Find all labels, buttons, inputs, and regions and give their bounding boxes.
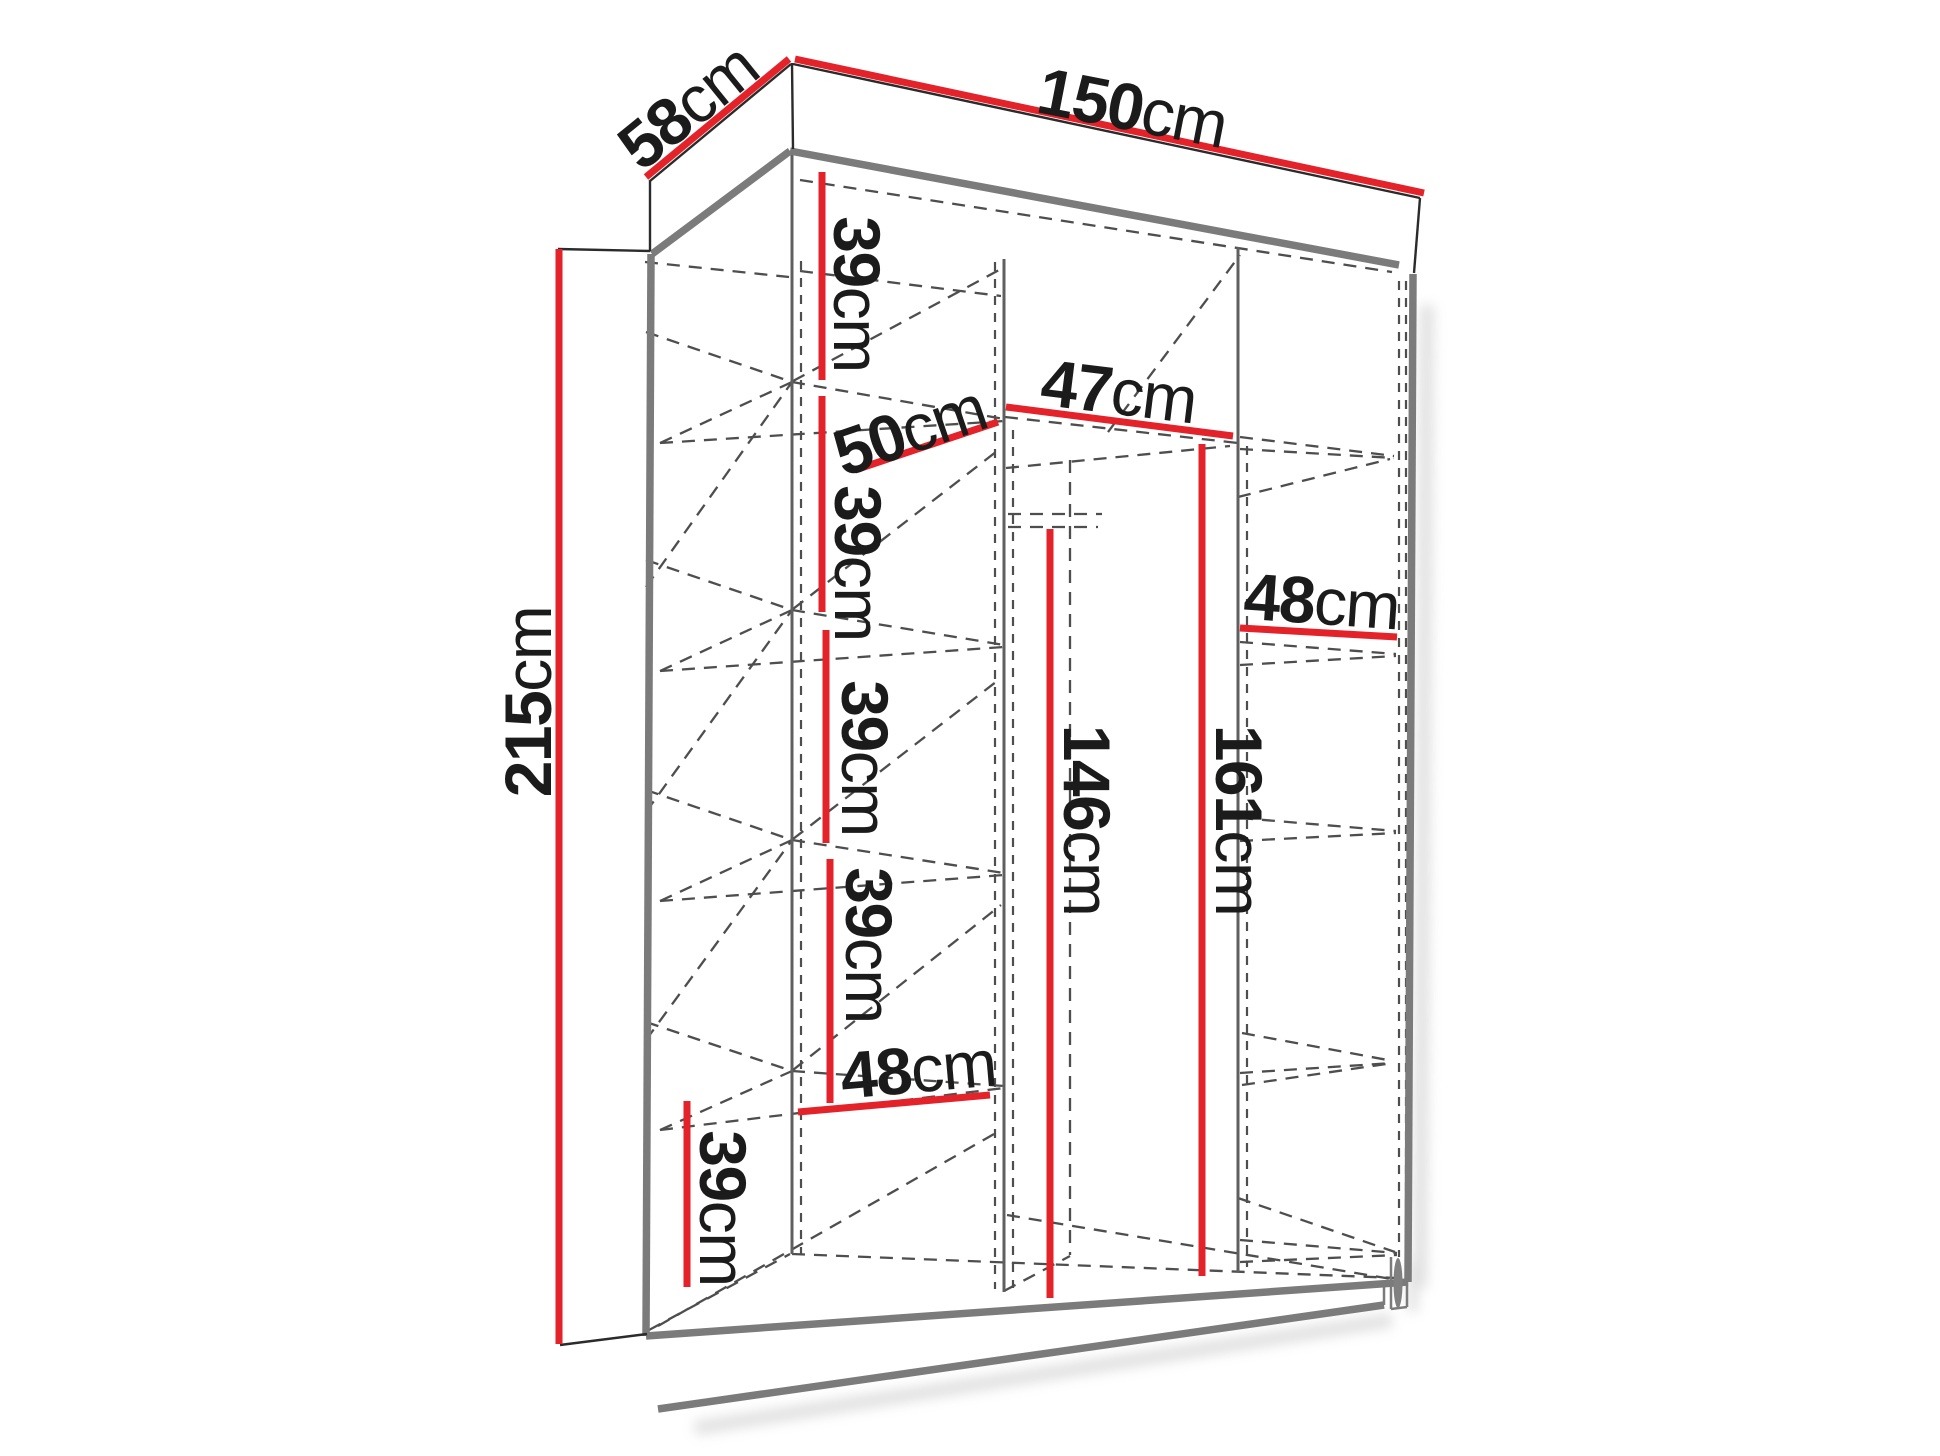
dim-width-label: 150cm: [1032, 53, 1233, 162]
dim-hanging-height-label: 146cm: [1050, 725, 1124, 916]
dim-middle-width-label: 47cm: [1037, 345, 1200, 437]
dim-left-width-label: 48cm: [837, 1025, 998, 1112]
diagram-canvas: 150cm 58cm 215cm 39cm 39cm 39cm 39cm 39c…: [0, 0, 1940, 1456]
dim-open-height-label: 161cm: [1202, 725, 1276, 916]
height-tick-top: [558, 249, 650, 251]
plinth-bottom-edge: [658, 1305, 1384, 1409]
height-tick-bottom: [560, 1334, 647, 1345]
front-right-edge: [1408, 274, 1413, 1282]
dim-width-unit: cm: [1135, 73, 1233, 162]
top-left-depth-edge: [652, 151, 790, 254]
dim-height-unit: cm: [491, 607, 565, 692]
dim-shelf-gap-4-label: 39cm: [832, 867, 906, 1022]
dim-depth-label: 58cm: [604, 28, 771, 183]
dimension-labels: 150cm 58cm 215cm 39cm 39cm 39cm 39cm 39c…: [491, 28, 1402, 1285]
wardrobe-dimension-diagram: 150cm 58cm 215cm 39cm 39cm 39cm 39cm 39c…: [0, 0, 1940, 1456]
dim-height-label: 215cm: [491, 607, 565, 798]
dim-shelf-gap-3-label: 39cm: [828, 680, 902, 835]
bottom-front-edge: [646, 1282, 1408, 1336]
foot-detail: [1394, 1258, 1403, 1308]
dim-shelf-gap-1-label: 39cm: [820, 216, 894, 371]
front-left-edge: [646, 254, 651, 1336]
dim-shelf-gap-bottom-label: 39cm: [686, 1130, 760, 1285]
dim-shelf-gap-2-label: 39cm: [821, 485, 895, 640]
dim-height-value: 215: [491, 692, 565, 798]
carcass-frame: [646, 151, 1413, 1409]
dim-width-value: 150: [1032, 53, 1150, 146]
dim-right-width-label: 48cm: [1242, 559, 1402, 644]
